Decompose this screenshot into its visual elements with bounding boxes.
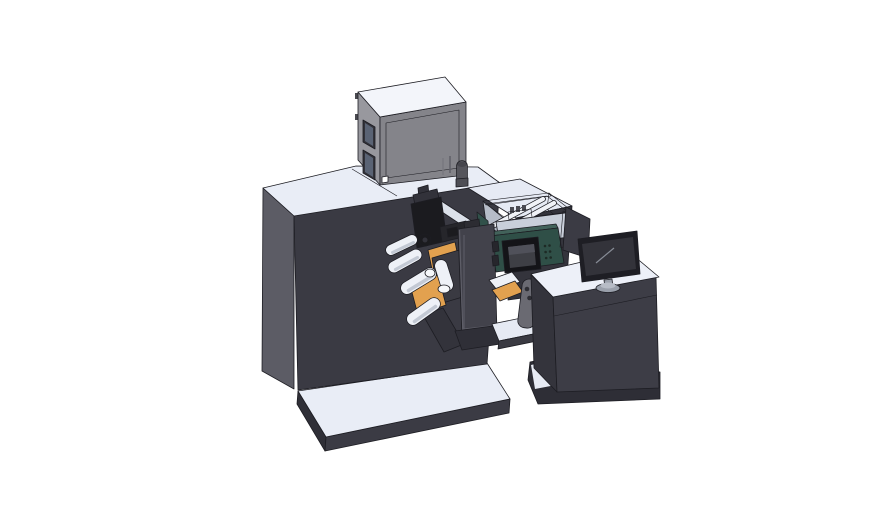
bracket-hole-1 [525,287,530,292]
tray-part-bump-1 [510,207,514,213]
hmi-vent-2 [548,244,551,247]
hmi-vent-6 [549,256,552,259]
hmi-vent-4 [549,250,552,253]
mech-roller-hub [423,238,428,243]
swing-door [458,219,499,337]
monitor-base-top [601,283,616,289]
bracket-hole-2 [527,296,532,301]
hmi-connector-tab-2 [492,255,499,266]
knob-cap [458,162,467,167]
roller-3-cap [425,269,435,277]
machine-render [0,0,888,522]
cabinet-left-face [262,188,294,389]
mech-bracket-bit [447,227,458,237]
roller-5-cap [438,285,450,293]
knob-base [456,178,468,187]
hmi-vent-1 [544,245,547,248]
electronics-box [355,77,468,187]
box-white-square [382,176,388,183]
hmi-vent-5 [545,257,548,260]
cad-render-canvas [0,0,888,522]
hmi-vent-3 [544,251,547,254]
hmi-connector-tab-1 [492,241,499,252]
roller-5 [441,266,447,285]
